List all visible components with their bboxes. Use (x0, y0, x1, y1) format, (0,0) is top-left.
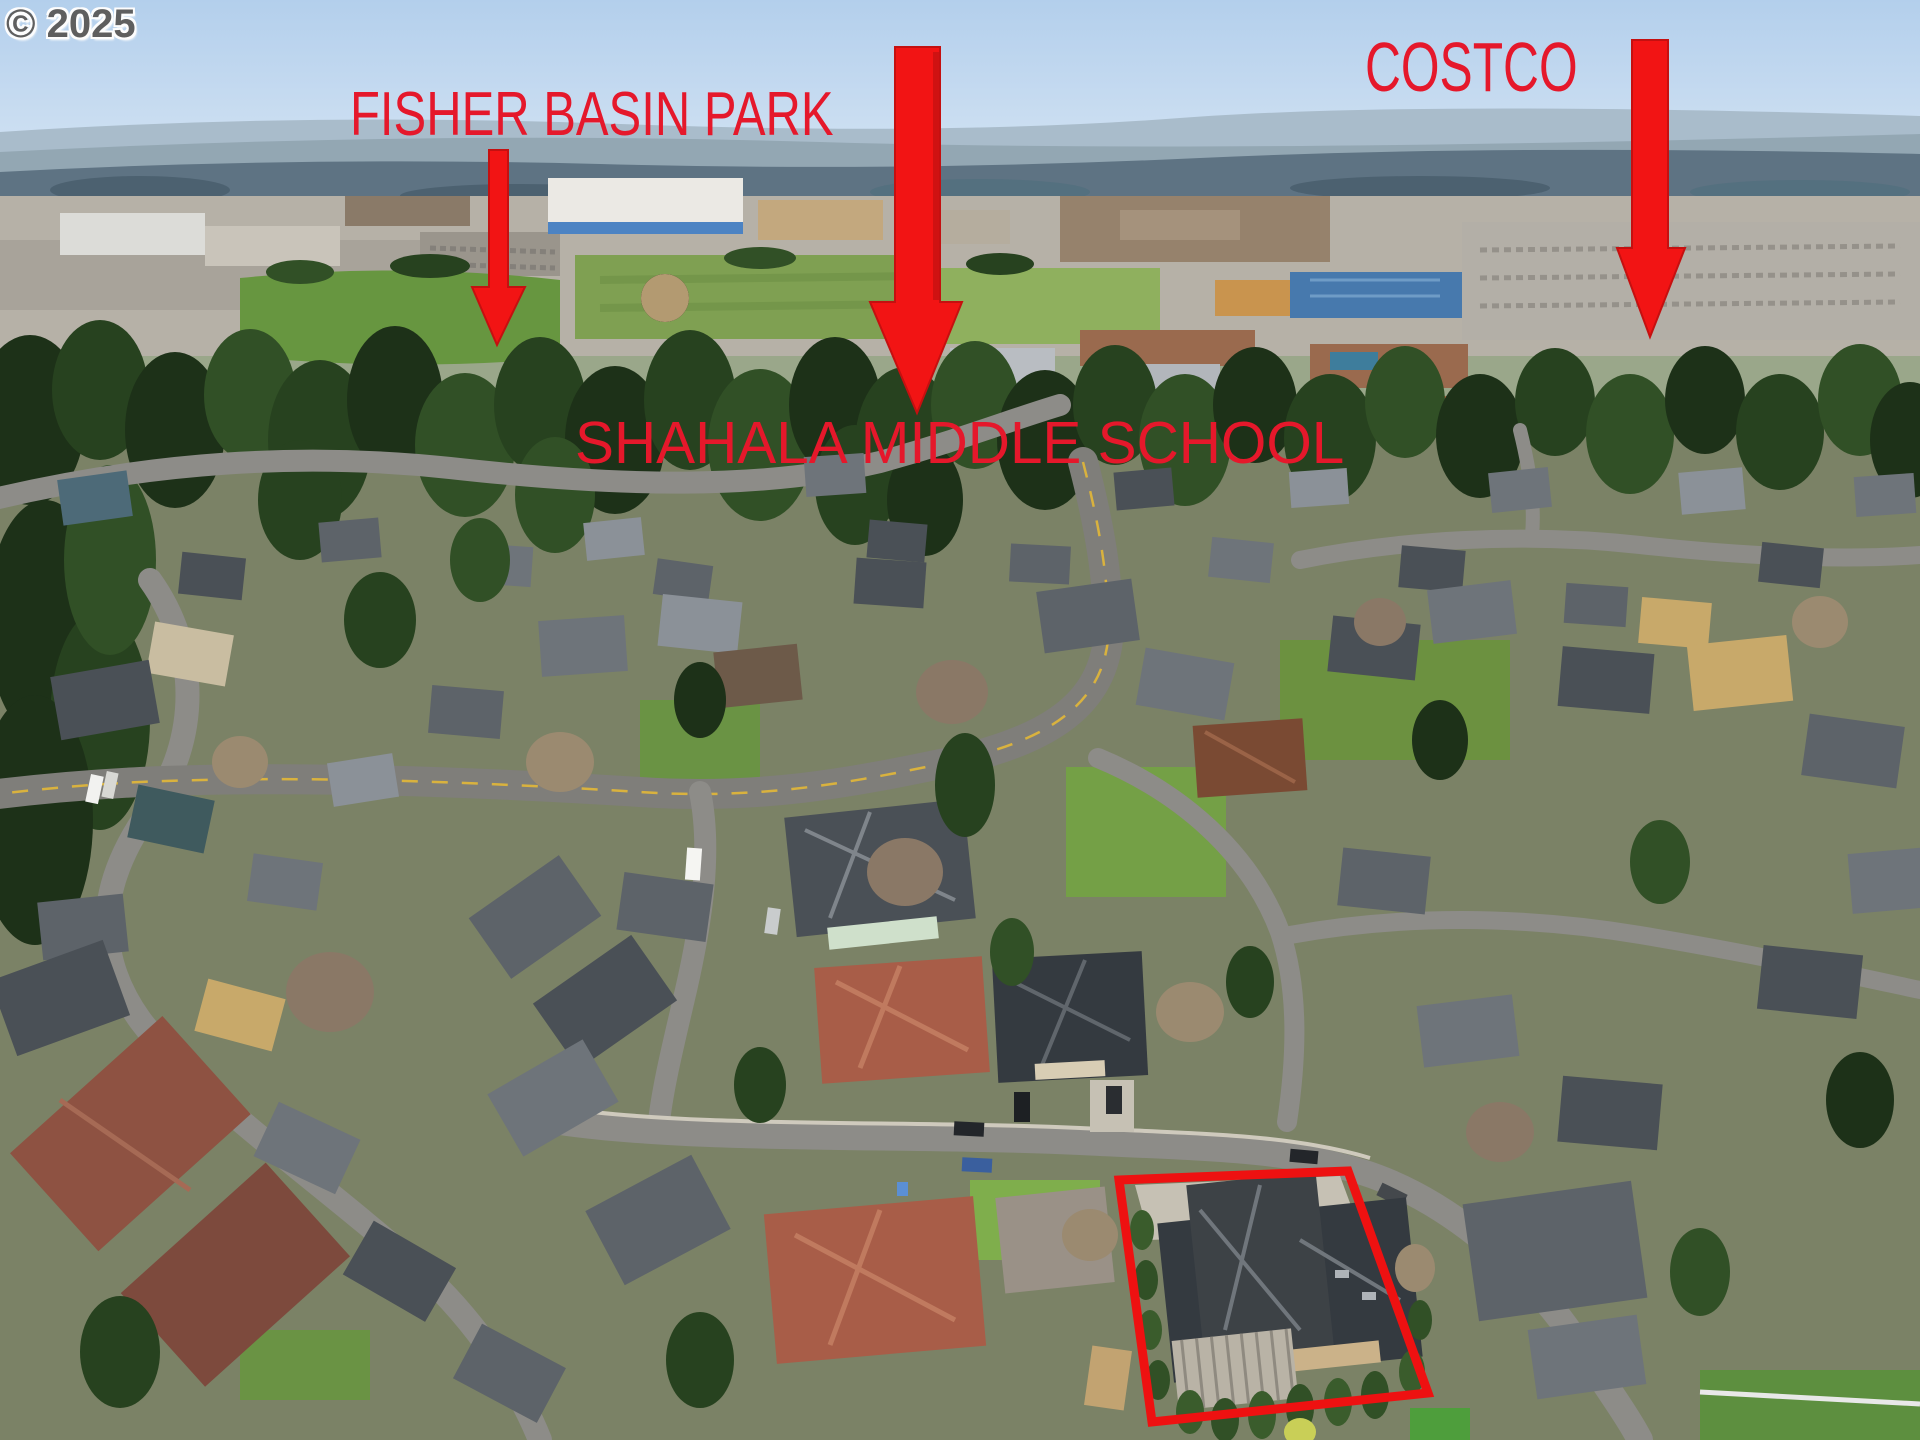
label-costco: COSTCO (1365, 35, 1578, 99)
property-outline (1119, 1171, 1428, 1422)
costco-down-arrow-icon (1617, 40, 1685, 337)
copyright-watermark: © 2025 (6, 2, 136, 47)
annotation-overlay (0, 0, 1920, 1440)
label-fisher-basin-park: FISHER BASIN PARK (350, 86, 834, 143)
label-shahala-middle-school: SHAHALA MIDDLE SCHOOL (575, 416, 1344, 470)
aerial-photo: FISHER BASIN PARK SHAHALA MIDDLE SCHOOL … (0, 0, 1920, 1440)
park-down-arrow-icon (472, 150, 525, 345)
school-down-arrow-icon (870, 47, 962, 413)
